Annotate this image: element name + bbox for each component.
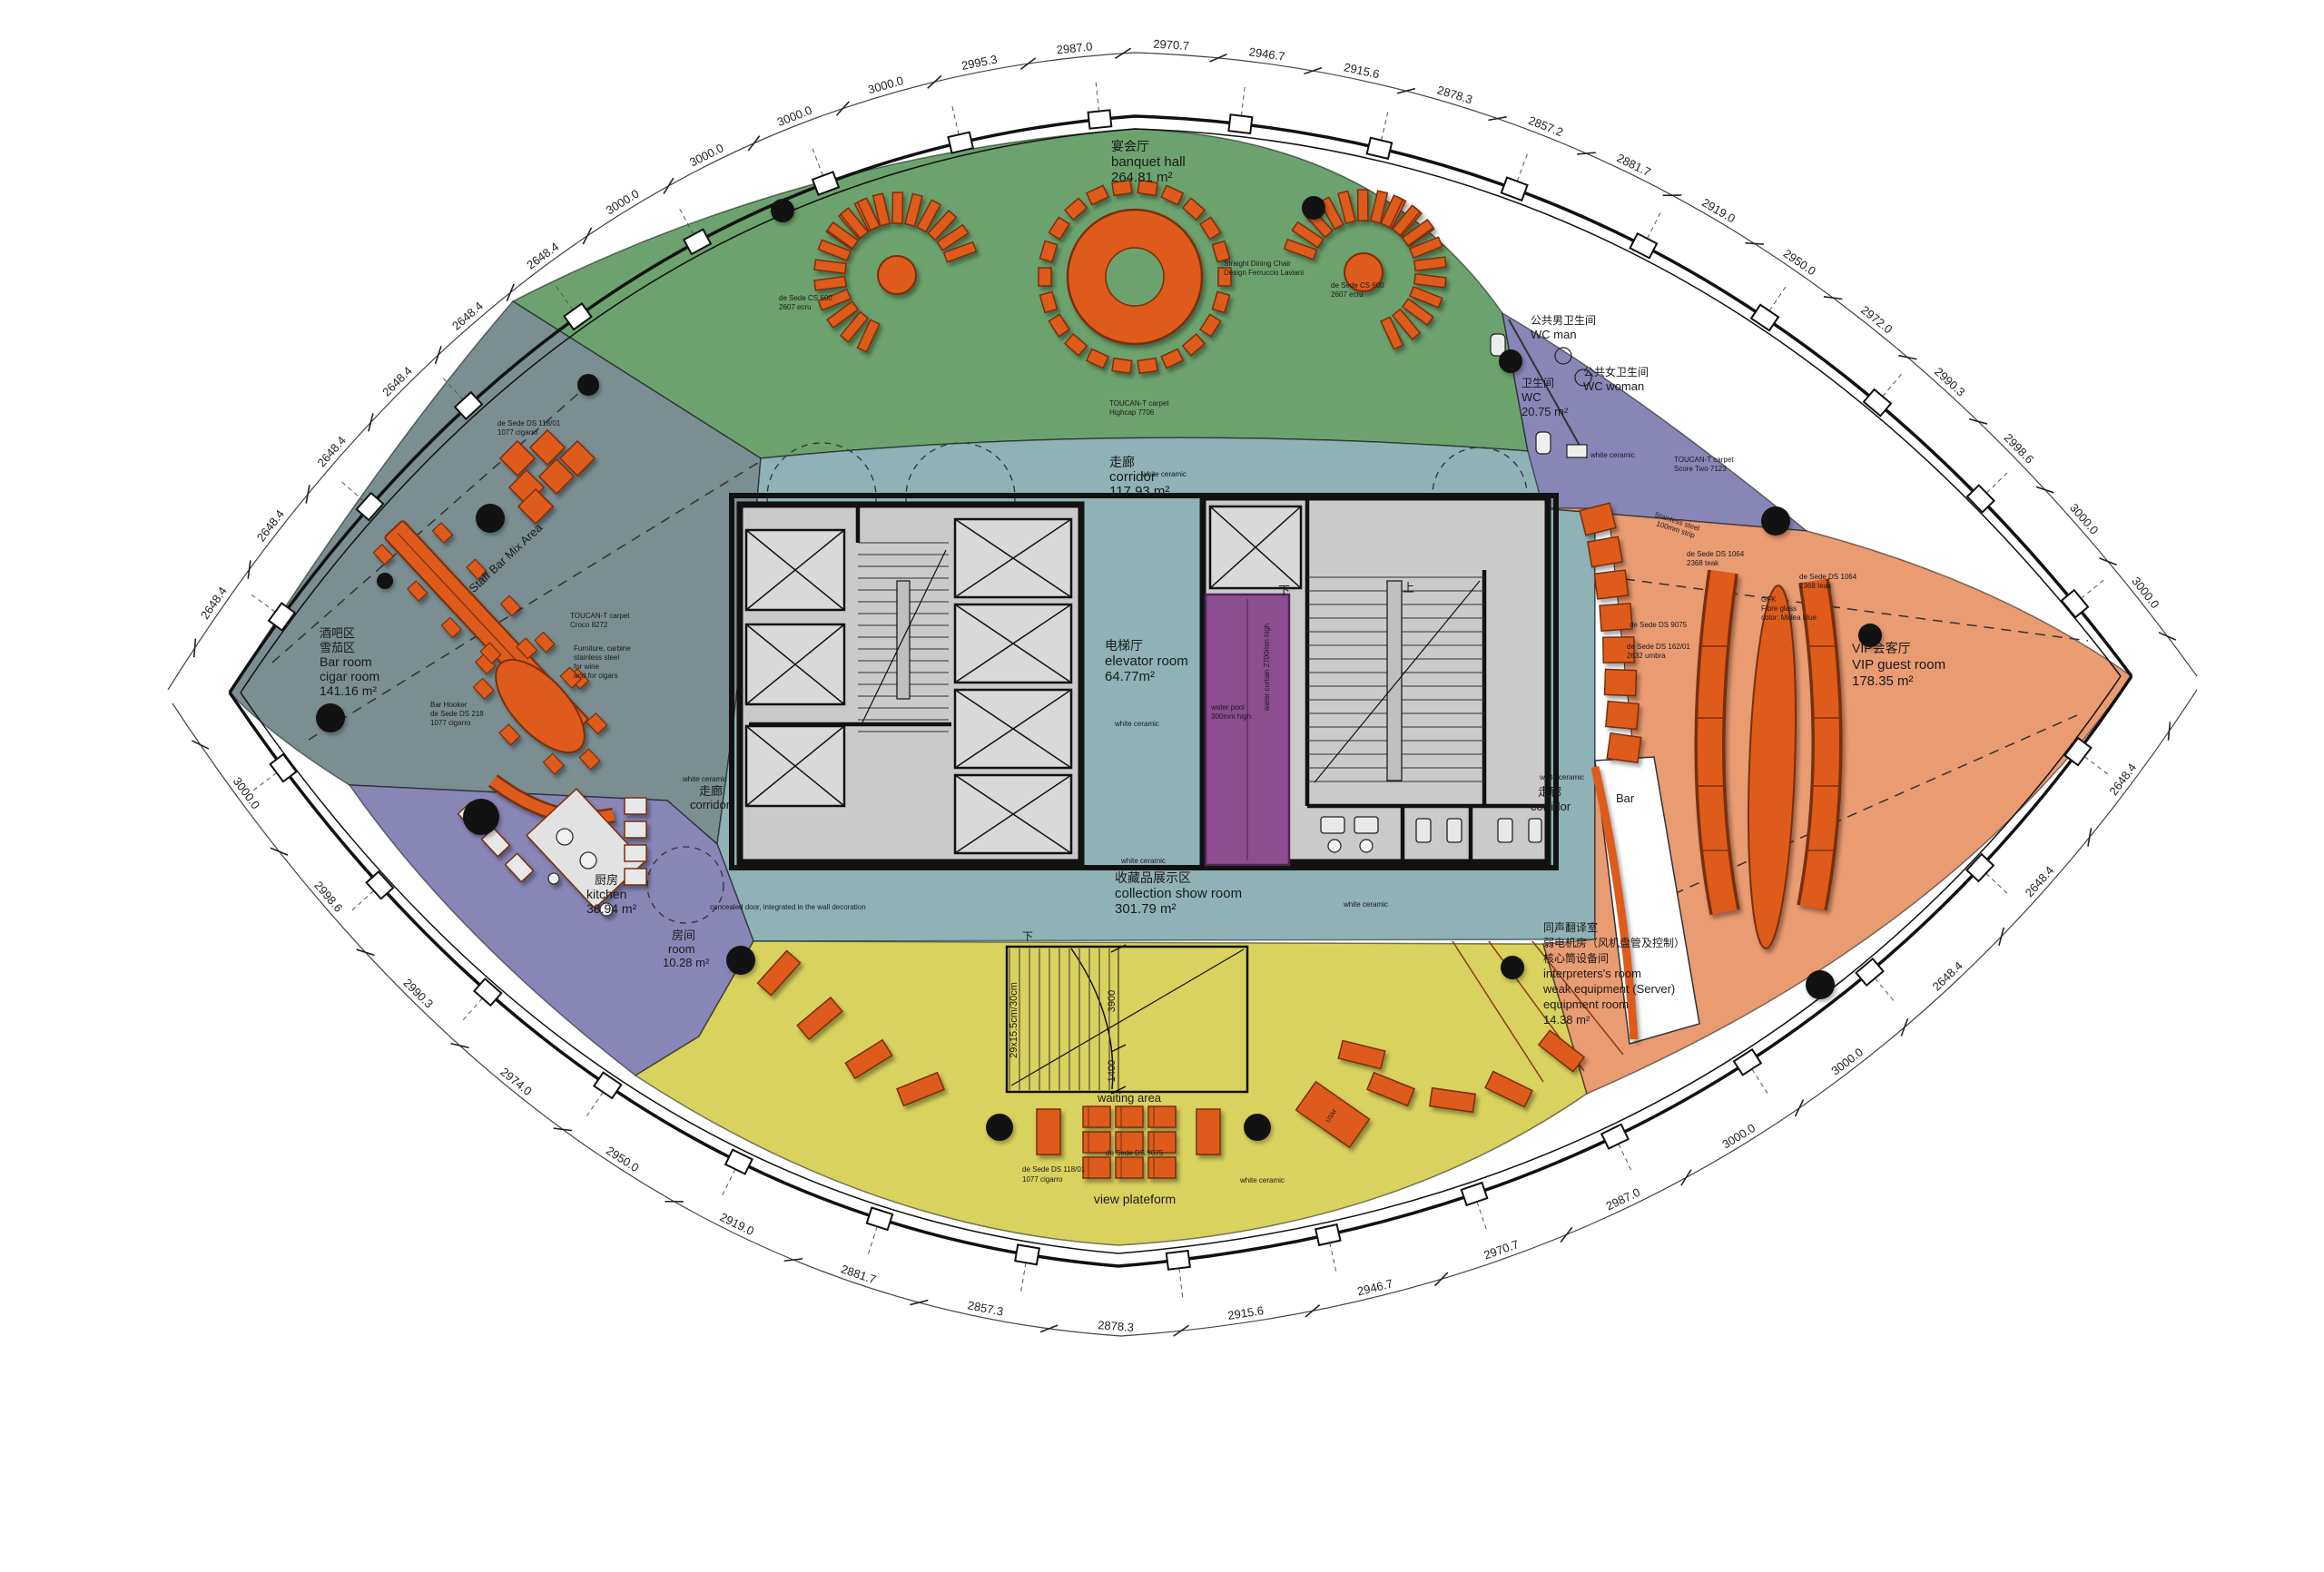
wc-man-name-cn: 公共男卫生间 xyxy=(1531,314,1596,327)
dim-label: 2919.0 xyxy=(718,1210,756,1238)
bar-table-note-2: 1077 cigarro xyxy=(497,428,538,437)
white-ceramic-1: white ceramic xyxy=(682,775,727,783)
wc-fixture xyxy=(1416,819,1431,842)
dim-tick xyxy=(784,1253,803,1267)
dim-tick xyxy=(1304,1305,1322,1317)
chair-note-2: Design Ferruccio Laviani xyxy=(1224,269,1304,277)
structural-column-dot xyxy=(377,573,393,589)
dim-tick xyxy=(665,1194,684,1210)
dim-label: 3000.0 xyxy=(2067,501,2102,537)
vip-bench-note-r1: de Sede DS 1064 xyxy=(1799,573,1857,581)
dim-label: 2987.0 xyxy=(1056,39,1093,56)
dim-tick xyxy=(2099,552,2116,570)
gfk-note-2: Fibre glass xyxy=(1761,604,1797,613)
water-pool-note-1: water pool xyxy=(1210,703,1245,712)
kitchen-burner xyxy=(580,852,596,869)
vip-bench-note-r2: 2368 teak xyxy=(1799,582,1832,590)
wc-fixture xyxy=(1354,817,1378,833)
elevator-room-name-en: elevator room xyxy=(1105,653,1188,669)
waiting-chair xyxy=(1116,1106,1143,1127)
bar-room-name-en: Bar room xyxy=(320,654,372,669)
wc-name-cn: 卫生间 xyxy=(1521,377,1554,389)
wc-urinal xyxy=(1536,432,1551,454)
carpet-note-bar-2: Croco 8272 xyxy=(570,621,608,629)
waiting-chair xyxy=(1083,1106,1110,1127)
wc-woman-name-en: WC woman xyxy=(1583,379,1644,393)
white-ceramic-3: white ceramic xyxy=(1114,720,1159,728)
facade-column xyxy=(1167,1251,1190,1270)
structural-column-dot xyxy=(726,946,755,975)
bar-right-label: Bar xyxy=(1616,791,1635,805)
corridor-right-name-cn: 走廊 xyxy=(1538,785,1561,799)
waiting-chair xyxy=(1148,1106,1176,1127)
carpet-note-vip-1: TOUCAN-T carpet xyxy=(1674,456,1734,464)
dim-tick xyxy=(2081,828,2098,846)
dim-tick xyxy=(1557,1227,1575,1242)
white-ceramic-4: white ceramic xyxy=(1120,857,1166,865)
vip-lounge-chair xyxy=(1607,733,1641,762)
dim-label: 2970.7 xyxy=(1482,1237,1520,1262)
white-ceramic-7: white ceramic xyxy=(1539,773,1584,781)
elevator-room-area: 64.77m² xyxy=(1105,669,1155,684)
facade-column xyxy=(1367,138,1392,159)
kitchen-unit xyxy=(625,798,646,814)
dim-tick xyxy=(833,102,852,115)
dim-label: 2878.3 xyxy=(1435,83,1473,106)
dim-tick xyxy=(241,560,258,578)
vip-lounge-chair xyxy=(1594,570,1628,599)
water-pool-note-2: 300mm high xyxy=(1211,712,1251,721)
dim-label: 2648.4 xyxy=(1930,958,1965,993)
kitchen-unit xyxy=(625,869,646,885)
dim-tick xyxy=(1304,65,1321,77)
wc-fixture xyxy=(1321,817,1344,833)
waiting-chair xyxy=(1148,1157,1176,1178)
corridor-left-name-cn: 走廊 xyxy=(699,784,723,798)
facade-column xyxy=(948,133,972,153)
dim-tick xyxy=(2161,722,2177,740)
vip-lounge-chair xyxy=(1606,702,1639,730)
banquet-chair xyxy=(1137,359,1157,374)
interpreter-name-en3: equipment room xyxy=(1543,997,1629,1011)
dim-tick xyxy=(1210,53,1227,64)
kitchen-unit xyxy=(625,821,646,838)
dim-tick xyxy=(554,1121,572,1138)
dim-tick xyxy=(1433,1272,1451,1286)
vip-chair-note-2: de Sede DS 162/01 xyxy=(1627,643,1690,651)
kitchen-burner xyxy=(548,873,559,884)
furniture-note-3: for wine xyxy=(574,663,600,671)
facade-column xyxy=(1088,110,1112,128)
dim-label: 2946.7 xyxy=(1356,1276,1394,1298)
white-ceramic-8: white ceramic xyxy=(1239,1176,1285,1184)
facade-column xyxy=(1228,114,1252,133)
floor-plan: 2648.42648.42648.42648.42648.42648.43000… xyxy=(0,0,2324,1572)
dim-tick xyxy=(659,178,678,193)
wc-fixture xyxy=(1498,819,1512,842)
vip-lounge-chair xyxy=(1588,536,1622,566)
vip-area: 178.35 m² xyxy=(1852,673,1914,689)
dim-tick xyxy=(744,136,763,151)
vip-name-en: VIP guest room xyxy=(1852,657,1945,673)
stair-up-core: 上 xyxy=(1403,581,1414,594)
interpreter-area: 14.38 m² xyxy=(1543,1013,1590,1027)
dim-label: 3000.0 xyxy=(687,141,725,169)
bar-hooker-note-2: de Sede DS 218 xyxy=(430,710,484,718)
dim-tick xyxy=(1824,290,1842,307)
kitchen-unit xyxy=(625,845,646,861)
interpreter-name-en2: weak equipment (Server) xyxy=(1542,982,1675,996)
kitchen-name-en: kitchen xyxy=(586,887,626,901)
dim-label: 2648.4 xyxy=(2023,863,2057,899)
stair-spine xyxy=(897,581,910,699)
dim-label: 2857.2 xyxy=(1527,113,1565,140)
kitchen-burner xyxy=(556,829,573,845)
furniture-note-4: and for cigars xyxy=(574,672,617,680)
dim-label: 3000.0 xyxy=(775,103,813,129)
dim-label: 2878.3 xyxy=(1098,1318,1135,1334)
dim-label: 3000.0 xyxy=(866,74,904,96)
dim-tick xyxy=(1397,84,1415,97)
corridor-right-name-en: corridor xyxy=(1531,800,1571,813)
wc-basin xyxy=(1360,840,1373,852)
banquet-hall-name-cn: 宴会厅 xyxy=(1111,139,1149,153)
elevator-room-name-cn: 电梯厅 xyxy=(1105,638,1143,653)
vip-lounge-chair xyxy=(1605,669,1637,695)
collection-show-room-name-en: collection show room xyxy=(1115,886,1242,901)
facade-column xyxy=(1502,178,1528,201)
furniture-note-1: Furniture, carbine xyxy=(574,644,631,653)
waiting-chair-side xyxy=(1196,1109,1220,1154)
fan-chair xyxy=(892,192,902,223)
bar-room-name-cn: 酒吧区 xyxy=(320,626,355,640)
dim-label: 2946.7 xyxy=(1248,44,1285,63)
banquet-table-hole xyxy=(1106,248,1164,306)
chair-note-right-1: de Sede CS 600 xyxy=(1331,281,1384,290)
fan-chair xyxy=(1358,190,1368,221)
chair-note-left-2: 2607 ecru xyxy=(779,303,812,311)
carpet-note-vip-2: Score Two 7123 xyxy=(1674,465,1727,473)
dim-label: 2987.0 xyxy=(1604,1185,1642,1213)
interpreter-name-cn2: 弱电机房（风机盘管及控制） xyxy=(1543,936,1685,949)
carpet-note-banquet-1: TOUCAN-T carpet xyxy=(1109,399,1169,408)
dim-tick xyxy=(910,1296,928,1309)
facade-column xyxy=(1462,1183,1488,1205)
dim-label: 2970.7 xyxy=(1153,37,1190,53)
bar-room-name-en2: cigar room xyxy=(320,669,379,683)
banquet-hall-name-en: banquet hall xyxy=(1111,154,1186,170)
chair-note-1: Straight Dining Chair xyxy=(1224,260,1291,268)
structural-column-dot xyxy=(1806,970,1835,999)
dim-tick xyxy=(1790,1100,1808,1116)
structural-column-dot xyxy=(1501,956,1524,979)
room-name-en: room xyxy=(668,942,695,956)
banquet-chair xyxy=(1039,268,1051,286)
structural-column-dot xyxy=(316,703,345,732)
dim-tick xyxy=(1173,1325,1190,1336)
view-plateform-label: view plateform xyxy=(1094,1192,1176,1206)
dim-tick xyxy=(925,75,943,88)
facade-column xyxy=(594,1073,621,1098)
room-name-cn: 房间 xyxy=(672,928,695,942)
bar-room-area: 141.16 m² xyxy=(320,683,377,698)
waiting-chair xyxy=(1083,1157,1110,1178)
concealed-door-note: concealed door, integrated in the wall d… xyxy=(710,903,866,911)
facade-column xyxy=(1734,1049,1761,1075)
vip-name-cn: VIP会客厅 xyxy=(1852,641,1911,655)
dim-tick xyxy=(578,228,597,244)
structural-column-dot xyxy=(577,374,599,396)
structural-column-dot xyxy=(1499,349,1522,373)
vip-chair-note-1: de Sede DS 9075 xyxy=(1630,621,1688,629)
interpreter-name-en: interpreters's room xyxy=(1543,967,1641,980)
stair-step-dim: 29x15.5cm/30cm xyxy=(1009,982,1019,1058)
vip-lounge-chair xyxy=(1600,604,1632,631)
wc-fixture xyxy=(1447,819,1462,842)
dim-label: 2990.3 xyxy=(1932,365,1968,399)
dim-tick xyxy=(1745,235,1764,251)
structural-column-dot xyxy=(476,504,505,533)
banquet-chair xyxy=(1112,359,1132,374)
wc-fixture xyxy=(1529,819,1541,842)
dim-tick xyxy=(192,735,208,753)
dim-label: 2915.6 xyxy=(1226,1303,1265,1322)
stair-down-platform: 下 xyxy=(1022,930,1033,943)
water-curtain-note: water curtain 2700mm high xyxy=(1263,624,1271,712)
white-ceramic-5: white ceramic xyxy=(1343,900,1388,909)
wc-name-en: WC xyxy=(1521,390,1541,404)
wc-woman-name-cn: 公共女卫生间 xyxy=(1583,365,1649,378)
stair-dim-1400: 1400 xyxy=(1107,1060,1118,1082)
waiting-area-label: waiting area xyxy=(1097,1091,1162,1105)
stair-dim-3900: 3900 xyxy=(1107,990,1118,1012)
structural-column-dot xyxy=(771,199,794,222)
waiting-chair-note-3: 1077 cigarro xyxy=(1022,1175,1063,1184)
vip-bench-note-l1: de Sede DS 1064 xyxy=(1687,550,1745,558)
dim-label: 2881.7 xyxy=(1615,151,1653,179)
corridor-top-name-cn: 走廊 xyxy=(1109,455,1135,469)
interpreter-name-cn3: 核心筒设备间 xyxy=(1543,951,1609,965)
bar-hooker-note-3: 1077 cigarro xyxy=(430,719,471,727)
collection-show-room-name-cn: 收藏品展示区 xyxy=(1115,870,1191,885)
structural-column-dot xyxy=(986,1114,1013,1141)
structural-column-dot xyxy=(1244,1114,1271,1141)
structural-column-dot xyxy=(1761,506,1790,535)
waiting-chair-note-2: de Sede DS 118/01 xyxy=(1022,1165,1086,1174)
dim-label: 2648.4 xyxy=(379,364,415,399)
dim-tick xyxy=(299,485,316,503)
dim-tick xyxy=(1488,112,1506,125)
chair-note-left-1: de Sede CS 600 xyxy=(779,294,832,302)
dim-tick xyxy=(1577,146,1596,161)
waiting-chair-side xyxy=(1037,1109,1060,1154)
facade-column xyxy=(1015,1244,1039,1264)
dim-tick xyxy=(186,639,202,658)
dim-label: 2998.6 xyxy=(2002,431,2036,467)
dim-label: 2881.7 xyxy=(839,1262,877,1286)
corridor-left-name-en: corridor xyxy=(690,798,731,811)
wc-man-name-en: WC man xyxy=(1531,328,1577,341)
dim-label: 2648.4 xyxy=(449,299,486,332)
bar-table-note-1: de Sede DS 118/01 xyxy=(497,419,561,427)
white-ceramic-6: white ceramic xyxy=(1590,451,1635,459)
furniture-note-2: stainless steel xyxy=(574,653,619,662)
gfk-note-1: GFK xyxy=(1761,595,1777,604)
side-table xyxy=(878,256,916,294)
carpet-note-banquet-2: Highcap 7706 xyxy=(1109,408,1155,417)
kitchen-name-cn: 厨房 xyxy=(595,873,618,887)
wc-counter xyxy=(1567,445,1587,457)
gfk-note-3: color: Midea blue xyxy=(1761,614,1817,622)
corridor-top-area: 117.93 m² xyxy=(1109,484,1169,499)
facade-column xyxy=(1315,1224,1340,1245)
waiting-chair xyxy=(1116,1157,1143,1178)
stair-spine xyxy=(1387,581,1402,781)
dim-tick xyxy=(2159,627,2176,645)
room-area: 10.28 m² xyxy=(663,956,710,969)
chair-note-right-2: 2607 ecru xyxy=(1331,290,1364,299)
structural-column-dot xyxy=(463,799,499,835)
dim-tick xyxy=(1677,1170,1696,1185)
banquet-hall-area: 264.81 m² xyxy=(1111,170,1173,185)
kitchen-area: 38.94 m² xyxy=(586,901,637,916)
structural-column-dot xyxy=(1302,196,1325,220)
dim-tick xyxy=(271,842,288,860)
white-ceramic-2: white ceramic xyxy=(1141,470,1187,478)
dim-label: 2648.4 xyxy=(314,434,349,470)
dim-tick xyxy=(1040,1323,1058,1334)
dim-tick xyxy=(1663,187,1682,202)
dim-label: 2990.3 xyxy=(400,976,436,1011)
carpet-note-bar-1: TOUCAN-T carpet xyxy=(570,612,630,620)
facade-column xyxy=(867,1208,892,1230)
interpreter-name-cn: 同声翻译室 xyxy=(1543,920,1598,934)
dim-tick xyxy=(1019,58,1037,70)
facade-column xyxy=(1751,305,1778,330)
bar-hooker-note-1: Bar Hooker xyxy=(430,701,468,709)
collection-show-room-area: 301.79 m² xyxy=(1115,901,1177,917)
waiting-chair-note-1: de Sede DS 9075 xyxy=(1106,1149,1164,1157)
wc-basin xyxy=(1328,840,1341,852)
bar-room-name-cn2: 雪茄区 xyxy=(320,641,355,654)
stair-down-core: 下 xyxy=(1278,584,1290,597)
vip-chair-note-3: 2632 umbra xyxy=(1627,652,1666,660)
vip-bench-note-l2: 2368 teak xyxy=(1687,559,1719,567)
wc-area: 20.75 m² xyxy=(1521,405,1569,418)
